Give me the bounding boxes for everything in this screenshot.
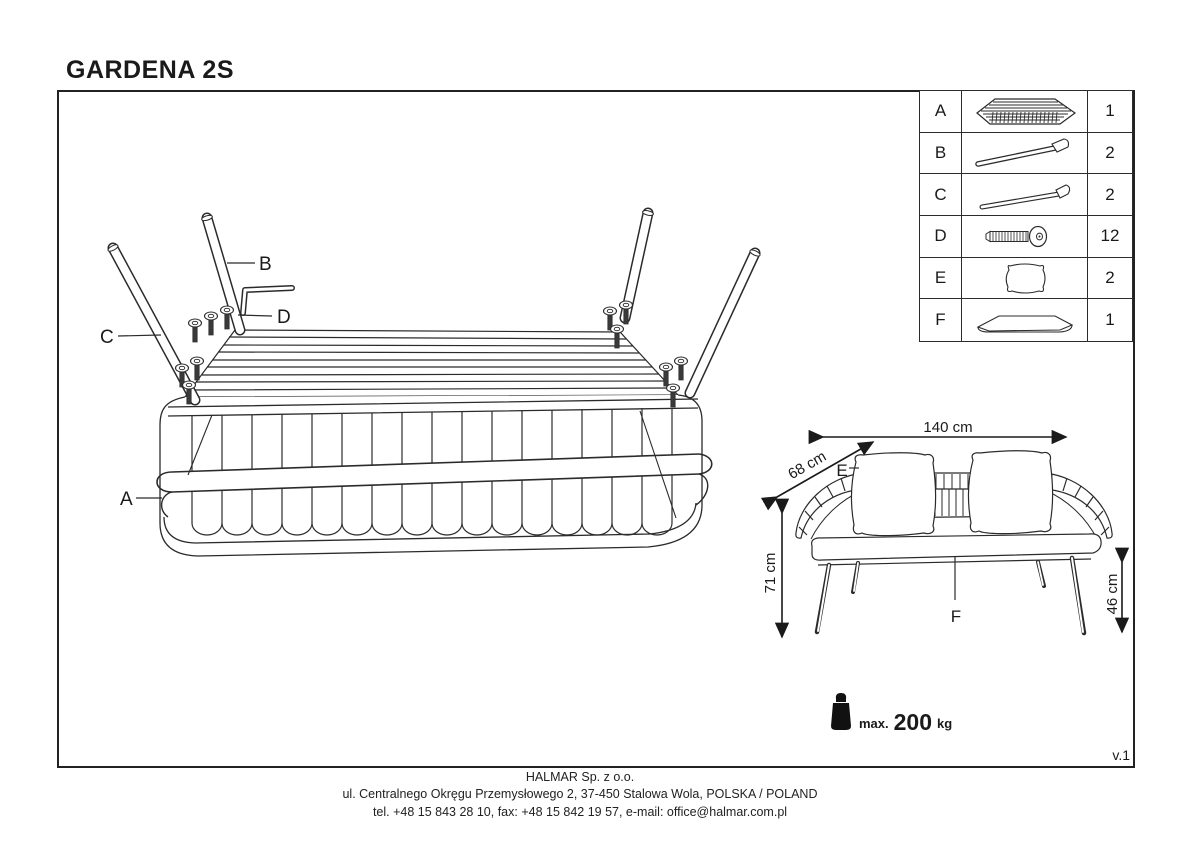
front-leg-tube <box>690 249 761 393</box>
table-row: B 2 <box>920 133 1132 175</box>
max-load-unit: kg <box>937 716 952 734</box>
footer-contact: tel. +48 15 843 28 10, fax: +48 15 842 1… <box>0 804 1160 821</box>
table-row: C 2 <box>920 174 1132 216</box>
woven-frame-body <box>157 395 712 556</box>
part-letter: F <box>920 299 962 341</box>
part-qty: 1 <box>1088 91 1132 132</box>
rear-leg-icon <box>962 133 1088 174</box>
weight-icon <box>828 692 854 734</box>
woven-seat-frame-icon <box>962 91 1088 132</box>
depth-dimension: 68 cm <box>785 448 829 483</box>
front-leg-callout: C <box>100 327 114 348</box>
pillow-callout: E <box>836 461 847 480</box>
sofa-back <box>796 473 1112 539</box>
dimension-diagram: 140 cm 68 cm 71 cm 46 cm E F <box>755 415 1135 665</box>
part-qty: 2 <box>1088 174 1132 215</box>
part-letter: C <box>920 174 962 215</box>
height-dimension: 71 cm <box>762 553 779 594</box>
front-leg-icon <box>962 174 1088 215</box>
part-qty: 12 <box>1088 216 1132 257</box>
version-label: v.1 <box>1096 747 1130 763</box>
assembly-diagram: B C D A <box>60 185 780 615</box>
footer-company: HALMAR Sp. z o.o. <box>0 769 1160 786</box>
table-row: F 1 <box>920 299 1132 341</box>
part-letter: B <box>920 133 962 174</box>
part-letter: A <box>920 91 962 132</box>
pillow-left <box>852 453 936 536</box>
bolt-callout: D <box>277 307 291 328</box>
allen-bolt-icon <box>962 216 1088 257</box>
max-load-prefix: max. <box>859 716 889 734</box>
max-load: max. 200 kg <box>828 692 952 734</box>
part-qty: 2 <box>1088 133 1132 174</box>
instruction-sheet: GARDENA 2S A 1 B 2 <box>0 0 1200 848</box>
footer: HALMAR Sp. z o.o. ul. Centralnego Okręgu… <box>0 769 1160 821</box>
table-row: E 2 <box>920 258 1132 300</box>
frame-callout: A <box>120 489 133 510</box>
cushion-callout: F <box>951 607 961 626</box>
parts-table: A 1 B 2 C <box>919 90 1133 342</box>
seat-cushion-icon <box>962 299 1088 341</box>
table-row: A 1 <box>920 91 1132 133</box>
rear-leg-callout: B <box>259 254 272 275</box>
footer-address: ul. Centralnego Okręgu Przemysłowego 2, … <box>0 786 1160 803</box>
width-dimension: 140 cm <box>923 419 972 436</box>
seat-cushion <box>812 534 1102 565</box>
seat-height-dimension: 46 cm <box>1104 574 1121 615</box>
part-letter: D <box>920 216 962 257</box>
part-letter: E <box>920 258 962 299</box>
pillow-icon <box>962 258 1088 299</box>
slat-platform <box>185 330 678 397</box>
max-load-value: 200 <box>894 711 932 734</box>
table-row: D 12 <box>920 216 1132 258</box>
part-qty: 2 <box>1088 258 1132 299</box>
part-qty: 1 <box>1088 299 1132 341</box>
page-title: GARDENA 2S <box>66 56 234 85</box>
pillow-right <box>969 451 1053 534</box>
